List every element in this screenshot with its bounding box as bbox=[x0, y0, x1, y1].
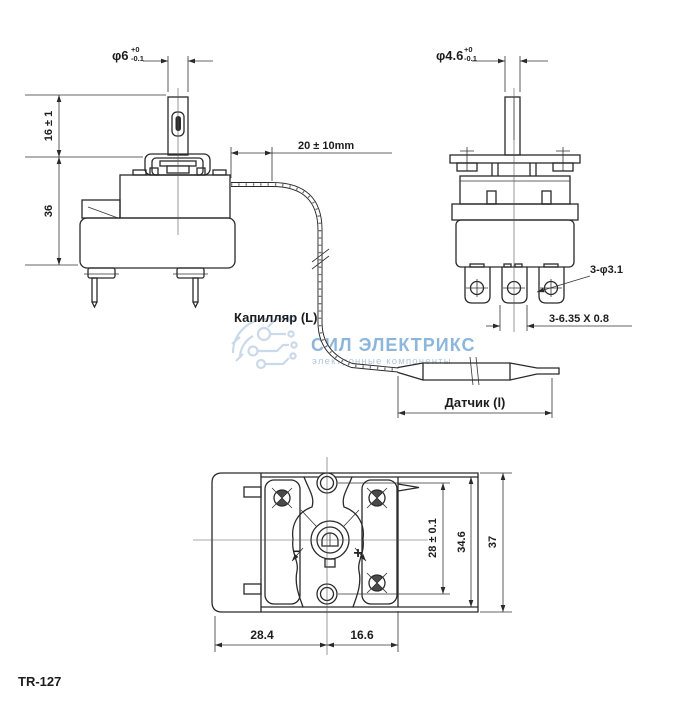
dim-text-dia6-tolplus: +0 bbox=[131, 45, 140, 54]
dim-capillary-bend: 20 ± 10mm bbox=[231, 140, 392, 181]
dim-text-terminal-size: 3-6.35 X 0.8 bbox=[549, 313, 609, 325]
dim-text-bracket-height: 34.6 bbox=[456, 531, 468, 552]
dim-front-shaft-diameter: φ6 +0 -0.1 bbox=[112, 45, 213, 92]
dim-text-dia46-tolplus: +0 bbox=[464, 45, 473, 54]
adjustment-screw[interactable] bbox=[311, 521, 349, 567]
dim-text-shaft-height: 16 ± 1 bbox=[43, 111, 55, 142]
capillary-exit-tab bbox=[398, 484, 419, 491]
dim-text-capillary-bend: 20 ± 10mm bbox=[298, 140, 354, 152]
dim-sensor-length: Датчик (l) bbox=[398, 376, 552, 418]
dim-front-left: 16 ± 1 36 bbox=[25, 95, 166, 265]
side-shaft bbox=[505, 97, 520, 155]
dim-text-body-height: 36 bbox=[43, 205, 55, 217]
side-upper-body bbox=[460, 176, 570, 204]
lower-body bbox=[80, 218, 235, 268]
dim-terminal-hole: 3-φ3.1 bbox=[537, 264, 623, 292]
side-body-band bbox=[452, 204, 578, 220]
dim-text-dia46: φ4.6 bbox=[436, 48, 463, 63]
waist-left bbox=[293, 477, 313, 607]
plate-screws bbox=[272, 488, 387, 593]
dim-side-shaft-diameter: φ4.6 +0 -0.1 bbox=[436, 45, 548, 92]
dim-bottom-widths: 28.4 16.6 bbox=[215, 611, 398, 652]
side-terminals bbox=[465, 264, 564, 303]
dim-text-dia46-tolminus: -0.1 bbox=[464, 54, 477, 63]
dim-text-terminal-hole: 3-φ3.1 bbox=[590, 264, 623, 276]
sensor-label: Датчик (l) bbox=[445, 395, 506, 410]
front-view: φ6 +0 -0.1 16 ± 1 36 bbox=[25, 45, 235, 307]
side-view: φ4.6 +0 -0.1 3-φ3.1 3-6.35 X 0.8 bbox=[436, 45, 632, 332]
waist-right bbox=[343, 477, 363, 607]
model-label: TR-127 bbox=[18, 674, 61, 689]
dim-text-overall-height: 37 bbox=[487, 536, 499, 548]
side-flange bbox=[450, 155, 580, 163]
sensor-break-mark bbox=[470, 357, 479, 385]
adjust-minus-label: − bbox=[293, 543, 301, 559]
dim-text-dia6: φ6 bbox=[112, 48, 129, 63]
dim-bottom-right: 28 ± 0.1 34.6 37 bbox=[338, 473, 512, 612]
capillary-label: Капилляр (L) bbox=[234, 310, 317, 325]
technical-drawing: СИЛ ЭЛЕКТРИКС электронные компоненты bbox=[0, 0, 700, 700]
dim-text-hole-spacing: 28 ± 0.1 bbox=[427, 518, 439, 558]
side-lower-body bbox=[456, 220, 574, 267]
adjust-plus-label: + bbox=[353, 545, 362, 562]
dim-text-bracket-width: 16.6 bbox=[350, 628, 374, 642]
dim-text-body-width: 28.4 bbox=[250, 628, 274, 642]
side-step bbox=[82, 200, 120, 218]
upper-body bbox=[120, 175, 230, 218]
dim-text-dia6-tolminus: -0.1 bbox=[131, 54, 144, 63]
dim-terminal-size: 3-6.35 X 0.8 bbox=[486, 305, 632, 331]
watermark-title: СИЛ ЭЛЕКТРИКС bbox=[311, 335, 475, 355]
front-terminals bbox=[84, 268, 208, 307]
bottom-view: − + bbox=[193, 457, 512, 655]
